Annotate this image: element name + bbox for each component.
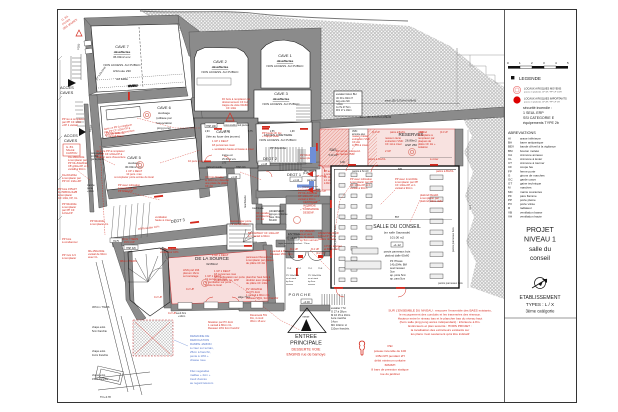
svg-text:LOCAUX A RISQUES IMPORTANTS: LOCAUX A RISQUES IMPORTANTS xyxy=(524,97,567,101)
svg-text:141x204é, BM: 141x204é, BM xyxy=(390,263,407,267)
svg-text:à remplacer: à remplacer xyxy=(62,256,76,260)
svg-text:(utilisée par: (utilisée par xyxy=(156,116,172,120)
svg-text:salle du: salle du xyxy=(529,246,551,253)
svg-text:+0.30: +0.30 xyxy=(290,236,297,240)
svg-text:15cm franchie: 15cm franchie xyxy=(92,377,109,381)
svg-text:désaffectée: désaffectée xyxy=(273,97,290,101)
svg-text:+12cm: +12cm xyxy=(87,191,94,193)
svg-text:palière révisée: palière révisée xyxy=(318,237,336,241)
svg-text:+14cm: +14cm xyxy=(178,315,185,318)
svg-text:sol sable: sol sable xyxy=(116,77,128,81)
svg-text:tot plof: tot plof xyxy=(91,155,98,158)
svg-text:CAVE 3: CAVE 3 xyxy=(274,91,288,96)
svg-text:ap. porte 5cm: ap. porte 5cm xyxy=(390,273,406,277)
svg-text:PF 1/2H+FP: PF 1/2H+FP xyxy=(118,189,133,193)
svg-text:1 UP 1 DEGT: 1 UP 1 DEGT xyxy=(212,139,229,143)
svg-text:0.2 UP: 0.2 UP xyxy=(154,295,162,299)
svg-text:ap. para 5cm: ap. para 5cm xyxy=(390,277,405,281)
svg-text:(0.2 UP: (0.2 UP xyxy=(372,132,380,134)
svg-text:ETABLISSEMENT: ETABLISSEMENT xyxy=(519,295,560,301)
svg-text:CAVES: CAVES xyxy=(64,138,78,143)
svg-text:PV 150x205é: PV 150x205é xyxy=(308,275,322,277)
svg-text:WC 45cm h: WC 45cm h xyxy=(304,171,317,173)
svg-text:LEGENDE: LEGENDE xyxy=(519,76,541,81)
svg-text:ENGINS rue de barnoye: ENGINS rue de barnoye xyxy=(287,353,326,357)
svg-text:LOCAUX A RISQUES MOYENS: LOCAUX A RISQUES MOYENS xyxy=(524,87,561,91)
svg-text:désaffectée: désaffectée xyxy=(212,65,229,69)
svg-text:1 vantail 90cm: 1 vantail 90cm xyxy=(106,134,124,138)
svg-text:CF 1H à créer: CF 1H à créer xyxy=(385,142,402,146)
svg-text:15.5 1 UP: 15.5 1 UP xyxy=(124,241,135,244)
svg-text:armoire élec: armoire élec xyxy=(352,133,366,136)
svg-text:pente: pente xyxy=(87,187,93,190)
svg-text:HS/route 230: HS/route 230 xyxy=(113,69,131,73)
svg-text:110cm franchis.: 110cm franchis. xyxy=(331,326,350,330)
svg-text:de plâtre CF 1/2H: de plâtre CF 1/2H xyxy=(246,281,267,285)
svg-text:60M3/H: 60M3/H xyxy=(385,363,396,367)
svg-text:101.00 m2: 101.00 m2 xyxy=(390,236,405,240)
svg-text:isolation: isolation xyxy=(418,145,428,149)
svg-text:tapis encastré déroulant : 7.5: tapis encastré déroulant : 7.5cm xyxy=(278,242,309,245)
svg-text:plafond bourdis: plafond bourdis xyxy=(206,166,223,169)
svg-text:8 bars de pression statique: 8 bars de pression statique xyxy=(371,368,408,372)
svg-text:36cm 16 env.: 36cm 16 env. xyxy=(250,319,266,323)
svg-text:plafond plâtre dalle: plafond plâtre dalle xyxy=(420,199,443,203)
svg-text:rue du jardinot: rue du jardinot xyxy=(380,372,400,376)
svg-text:1ere marche: 1ere marche xyxy=(331,316,347,320)
svg-text:ventilateur 10%: ventilateur 10% xyxy=(160,250,179,254)
svg-text:(liée au foyer des jeunes): (liée au foyer des jeunes) xyxy=(206,135,240,139)
svg-text:INCENDIE: INCENDIE xyxy=(303,204,316,208)
svg-text:+1.12: +1.12 xyxy=(293,179,300,182)
svg-text:au regard telecom: au regard telecom xyxy=(190,381,214,385)
svg-text:PP CF 1/2H+FP: PP CF 1/2H+FP xyxy=(62,179,82,183)
svg-text:135m3/H pendant 2H: 135m3/H pendant 2H xyxy=(375,354,404,358)
svg-text:patins à BA/CL: patins à BA/CL xyxy=(390,131,406,134)
svg-text:va et vient: va et vient xyxy=(308,277,318,280)
svg-text:CF 1/2H, FP, CL: CF 1/2H, FP, CL xyxy=(58,196,78,200)
svg-text:(0.2 UP: (0.2 UP xyxy=(290,248,299,251)
svg-text:sp 5cm serrure: sp 5cm serrure xyxy=(300,238,318,242)
svg-text:2,93: 2,93 xyxy=(205,131,210,133)
svg-text:ENTREE: ENTREE xyxy=(295,334,317,340)
svg-text:de plâtre CF 2H: de plâtre CF 2H xyxy=(246,261,265,265)
svg-text:DESENF.: DESENF. xyxy=(303,211,315,215)
svg-text:COMMANDE: COMMANDE xyxy=(303,207,319,211)
svg-text:DESSERTE VOIE: DESSERTE VOIE xyxy=(292,348,321,352)
svg-text:désaffectée: désaffectée xyxy=(114,50,131,54)
svg-text:NON ACCESS. AU PUBLIC: NON ACCESS. AU PUBLIC xyxy=(103,63,141,67)
svg-text:les plans n'est seulement qu'à: les plans n'est seulement qu'à titre ind… xyxy=(411,332,470,336)
svg-text:parois et plafonds CF 2H / PF: parois et plafonds CF 2H / PF CF 1H xyxy=(524,101,560,104)
svg-text:G 27 à 28cm: G 27 à 28cm xyxy=(331,309,347,313)
svg-text:poteau incendie de 100: poteau incendie de 100 xyxy=(374,349,406,353)
svg-text:l'association: l'association xyxy=(156,121,173,125)
svg-text:11cm franchie: 11cm franchie xyxy=(92,353,109,357)
svg-text:HSP 250: HSP 250 xyxy=(405,143,417,147)
svg-text:5cm franchie: 5cm franchie xyxy=(92,329,107,333)
svg-text:Ressaut 15%, 3cm franchir: Ressaut 15%, 3cm franchir xyxy=(246,296,278,300)
svg-text:(0.2 UP: (0.2 UP xyxy=(440,132,448,134)
svg-text:va et vient: va et vient xyxy=(286,277,296,280)
svg-text:DEGT 1: DEGT 1 xyxy=(287,172,301,177)
svg-text:557: 557 xyxy=(395,215,400,219)
svg-text:débit minimum unitaire: débit minimum unitaire xyxy=(374,359,405,363)
svg-text:NIVEAU: NIVEAU xyxy=(128,83,138,88)
svg-text:CAVE 1: CAVE 1 xyxy=(278,53,292,58)
svg-text:haute à créer: haute à créer xyxy=(155,218,171,222)
svg-text:parois à 6m10: parois à 6m10 xyxy=(352,169,369,173)
svg-text:ENTREE: ENTREE xyxy=(288,232,300,236)
svg-text:garde plomb: garde plomb xyxy=(91,158,104,161)
svg-text:PORCHE: PORCHE xyxy=(288,292,311,297)
svg-text:32.80m2: 32.80m2 xyxy=(206,262,218,266)
svg-text:+1 vantail 90cm: +1 vantail 90cm xyxy=(230,222,250,226)
svg-text:SSI CATEGORIE E: SSI CATEGORIE E xyxy=(523,116,555,120)
svg-text:sécurité incendie :: sécurité incendie : xyxy=(523,106,552,110)
svg-text:gainterie: gainterie xyxy=(307,179,317,182)
svg-text:CAVE 7: CAVE 7 xyxy=(115,44,129,49)
svg-text:+1.48: +1.48 xyxy=(261,163,268,166)
svg-text:1 SEUL ERP: 1 SEUL ERP xyxy=(523,111,544,115)
svg-text:V030: V030 xyxy=(76,43,81,50)
svg-text:PV 150x205é: PV 150x205é xyxy=(286,275,300,277)
svg-text:parois et plafonds CF 1H / PF: parois et plafonds CF 1H / PF CF 1/2H xyxy=(524,91,562,94)
svg-text:àp 5cm: àp 5cm xyxy=(308,281,315,283)
svg-text:servo 150 -5,70,H+6,4 89+60: servo 150 -5,70,H+6,4 89+60 xyxy=(385,100,417,103)
svg-text:machinerie: machinerie xyxy=(243,195,247,208)
svg-text:test veuille: test veuille xyxy=(225,123,236,126)
svg-text:R5 2 UP: R5 2 UP xyxy=(316,189,326,193)
svg-text:18 personnes maxi: 18 personnes maxi xyxy=(212,143,235,147)
svg-text:CAVE 5: CAVE 5 xyxy=(127,155,141,160)
svg-text:plafond dalle 60x60: plafond dalle 60x60 xyxy=(385,254,410,258)
svg-text:servo 150 -5,70,H+6,4 89+60: servo 150 -5,70,H+6,4 89+60 xyxy=(360,116,392,119)
svg-text:2 UP: 2 UP xyxy=(385,149,391,153)
svg-text:sol pierres: sol pierres xyxy=(238,124,250,127)
svg-text:avec CL: avec CL xyxy=(88,255,98,259)
svg-text:G 27è 27.5cm: G 27è 27.5cm xyxy=(336,107,351,109)
svg-text:M 16 15 à 16cm: M 16 15 à 16cm xyxy=(331,313,351,317)
svg-text:désaffectée: désaffectée xyxy=(277,59,294,63)
svg-text:1 UP 1 DEGT: 1 UP 1 DEGT xyxy=(212,253,229,257)
svg-text:3.08: 3.08 xyxy=(340,161,345,164)
svg-text:+ trappe visite: + trappe visite xyxy=(262,134,279,138)
svg-text:à condamner: à condamner xyxy=(62,240,78,244)
svg-text:ABREVIATIONS: ABREVIATIONS xyxy=(508,131,536,135)
svg-text:escalier 7 M: escalier 7 M xyxy=(331,306,346,310)
svg-text:équipements TYPE 2b: équipements TYPE 2b xyxy=(523,121,559,125)
svg-text:stockage: stockage xyxy=(158,111,170,115)
svg-text:escalier béton BH: escalier béton BH xyxy=(336,92,357,96)
svg-text:+1.15: +1.15 xyxy=(231,176,238,179)
svg-text:parois panneaux bois: parois panneaux bois xyxy=(451,227,455,252)
svg-text:PEI: PEI xyxy=(388,344,393,348)
svg-text:1/2H+FP: 1/2H+FP xyxy=(62,211,73,215)
svg-text:larg entre MC: larg entre MC xyxy=(336,100,350,103)
svg-text:TN +0.78: TN +0.78 xyxy=(100,395,111,399)
svg-text:serrure: serrure xyxy=(286,283,294,286)
svg-text:céta roulée: céta roulée xyxy=(91,152,103,155)
svg-text:80x200: 80x200 xyxy=(269,219,278,222)
svg-text:(0.2 UP: (0.2 UP xyxy=(311,248,320,251)
svg-text:1117: 1117 xyxy=(469,204,472,210)
svg-text:NON ACCESS. AU PUBLIC: NON ACCESS. AU PUBLIC xyxy=(259,138,297,142)
svg-text:chape exist.: chape exist. xyxy=(92,325,106,329)
svg-text:M N 17 è 18cm: M N 17 è 18cm xyxy=(336,110,352,112)
svg-text:605: 605 xyxy=(398,168,403,171)
svg-text:NON ACCESS. AU PUBLIC: NON ACCESS. AU PUBLIC xyxy=(262,102,300,106)
svg-text:Ressaut 10% 3cm franchir: Ressaut 10% 3cm franchir xyxy=(208,326,240,330)
svg-text:0.2 UP: 0.2 UP xyxy=(186,287,194,291)
svg-text:trappe ext: trappe ext xyxy=(222,154,233,157)
svg-text:serrure: serrure xyxy=(308,283,316,286)
svg-text:à remplacer porte entrée du lo: à remplacer porte entrée du local xyxy=(114,175,154,179)
svg-text:PRINCIPALE: PRINCIPALE xyxy=(290,341,322,347)
svg-text:CAVE 6: CAVE 6 xyxy=(157,105,171,110)
svg-text:HSP 216: HSP 216 xyxy=(236,166,246,169)
svg-text:àp 5cm: àp 5cm xyxy=(286,281,293,283)
svg-text:chasse roue: chasse roue xyxy=(190,358,206,362)
svg-text:H175: H175 xyxy=(113,240,119,243)
svg-text:à remplacer CL: à remplacer CL xyxy=(90,222,109,226)
svg-text:375: 375 xyxy=(222,162,227,165)
svg-text:26.80m2: 26.80m2 xyxy=(405,139,417,143)
svg-text:R5 2 UP: R5 2 UP xyxy=(316,174,326,178)
svg-text:367cm / TIERS: 367cm / TIERS xyxy=(92,305,110,309)
svg-text:marche: marche xyxy=(87,184,95,187)
svg-text:SALLE DU CONSEIL: SALLE DU CONSEIL xyxy=(373,224,421,230)
svg-text:3cm: 3cm xyxy=(390,270,395,274)
svg-text:+0.00: +0.00 xyxy=(303,300,310,304)
svg-text:(ex salle Saussade): (ex salle Saussade) xyxy=(384,231,410,235)
svg-text:chape exist.: chape exist. xyxy=(92,349,106,353)
svg-text:VH: VH xyxy=(508,214,512,218)
svg-text:14cm: 14cm xyxy=(331,320,338,324)
svg-text:machinerie: machinerie xyxy=(252,207,264,210)
svg-text:patins à BA/CL: patins à BA/CL xyxy=(368,157,386,161)
svg-text:à créer: à créer xyxy=(430,157,438,161)
svg-text:+FP 1 vantail: +FP 1 vantail xyxy=(62,123,78,127)
svg-text:vantail à 90cm: vantail à 90cm xyxy=(350,186,368,190)
svg-text:NON ACCESS. AU PUBLIC: NON ACCESS. AU PUBLIC xyxy=(201,70,239,74)
svg-text:CF 2H: CF 2H xyxy=(205,184,213,188)
svg-text:de l'accès PMR: de l'accès PMR xyxy=(336,152,355,156)
svg-text:sol carrelage: sol carrelage xyxy=(183,274,199,278)
svg-text:à 1 vantail à 90cm: à 1 vantail à 90cm xyxy=(248,234,271,238)
svg-text:patins à BA/CL: patins à BA/CL xyxy=(436,169,454,173)
svg-text:vantail à 90cm: vantail à 90cm xyxy=(395,186,413,190)
svg-text:ping pong): ping pong) xyxy=(157,126,171,130)
svg-text:HSP 326: HSP 326 xyxy=(126,247,136,250)
svg-text:altige 77cm: altige 77cm xyxy=(238,296,250,299)
svg-text:ventilation haute: ventilation haute xyxy=(520,214,542,218)
svg-text:PF ITfossé: PF ITfossé xyxy=(390,259,403,263)
svg-text:CANTOU: CANTOU xyxy=(66,151,77,155)
svg-text:10 pers. max: 10 pers. max xyxy=(188,159,204,163)
svg-text:CENTRALE: CENTRALE xyxy=(303,200,318,204)
svg-text:PROJET: PROJET xyxy=(526,227,554,234)
svg-text:MC 102cm H: MC 102cm H xyxy=(331,323,347,327)
svg-text:parois panneaux bois: parois panneaux bois xyxy=(438,281,463,285)
svg-text:3,75: 3,75 xyxy=(248,131,253,133)
svg-text:CAVE 2: CAVE 2 xyxy=(213,59,227,64)
svg-text:NON ACCESS. AU PUBLIC: NON ACCESS. AU PUBLIC xyxy=(266,64,304,68)
svg-text:2,08: 2,08 xyxy=(225,131,230,133)
svg-text:36.00m2 env.: 36.00m2 env. xyxy=(113,55,131,59)
svg-text:TYPES : L / X: TYPES : L / X xyxy=(526,302,554,307)
svg-text:+ ventilation haute et basse à: + ventilation haute et basse à créer xyxy=(212,147,254,151)
svg-text:UC 90 è 93cm H: UC 90 è 93cm H xyxy=(336,98,353,100)
svg-text:CF 1/2H: CF 1/2H xyxy=(226,106,236,110)
svg-text:+1.12: +1.12 xyxy=(393,243,401,247)
svg-text:seuil ressaut: seuil ressaut xyxy=(390,266,405,270)
svg-text:conseil: conseil xyxy=(530,255,550,262)
svg-text:CF 1H: CF 1H xyxy=(256,217,264,221)
svg-text:CAVES: CAVES xyxy=(60,90,74,95)
svg-text:HSP 190: HSP 190 xyxy=(206,125,216,128)
svg-text:3ème catégorie: 3ème catégorie xyxy=(526,309,556,314)
svg-text:2,55: 2,55 xyxy=(270,131,275,133)
svg-text:NIVEAU 1: NIVEAU 1 xyxy=(524,237,556,244)
svg-text:rampe: rampe xyxy=(303,316,310,319)
svg-text:1,98: 1,98 xyxy=(290,131,295,133)
